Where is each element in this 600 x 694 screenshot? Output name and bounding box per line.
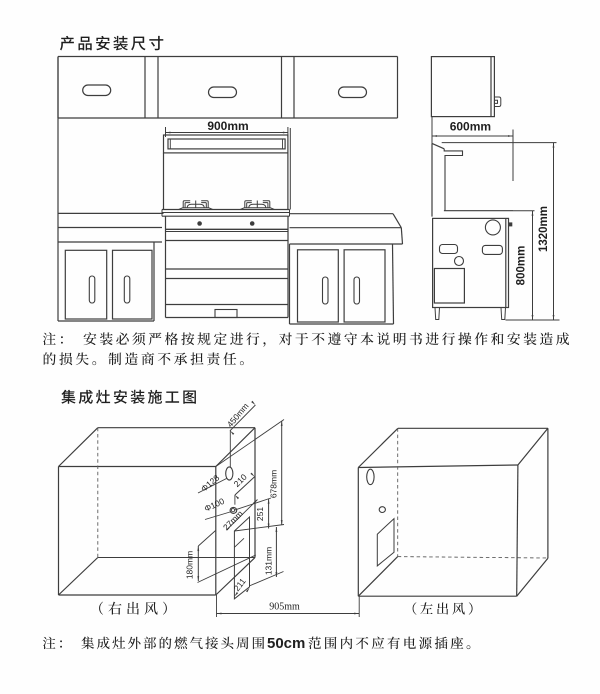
svg-text:1320mm: 1320mm	[538, 206, 550, 252]
svg-text:450mm: 450mm	[225, 401, 251, 429]
svg-text:251: 251	[255, 507, 265, 521]
svg-text:27mm: 27mm	[221, 508, 245, 532]
svg-text:905mm: 905mm	[269, 602, 300, 613]
svg-text:210: 210	[232, 472, 249, 489]
svg-text:Φ100: Φ100	[203, 496, 226, 514]
svg-text:50cm: 50cm	[267, 635, 305, 652]
svg-text:131mm: 131mm	[264, 547, 274, 575]
svg-text:180mm: 180mm	[184, 551, 194, 579]
svg-text:600mm: 600mm	[450, 120, 491, 134]
svg-text:900mm: 900mm	[207, 119, 248, 133]
svg-text:800mm: 800mm	[516, 246, 528, 286]
svg-text:678mm: 678mm	[269, 470, 279, 498]
